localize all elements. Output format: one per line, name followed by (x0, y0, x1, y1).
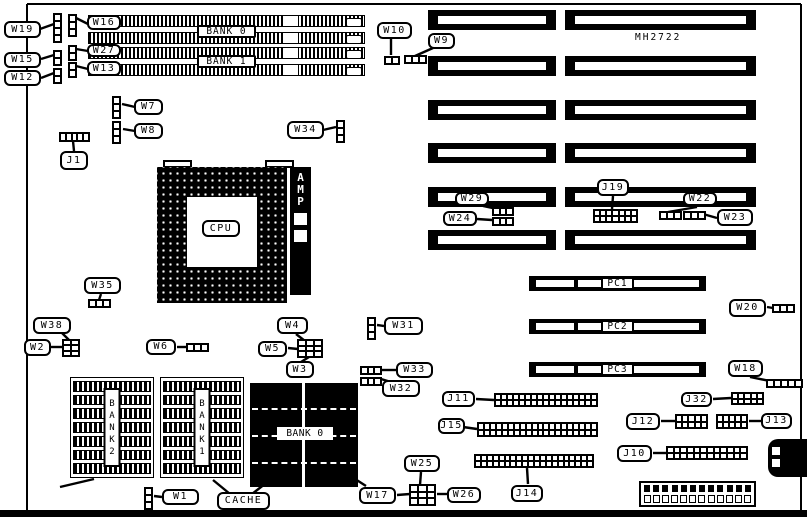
pin-cell (550, 395, 554, 399)
pin-cell (299, 347, 305, 351)
pin-cell (595, 217, 599, 221)
pin-cell (580, 395, 584, 399)
pin-cell (55, 22, 60, 27)
callout-w1: W1 (162, 489, 199, 505)
pin-cell (55, 59, 60, 64)
pin-cell (742, 423, 746, 428)
pin-cell (55, 77, 60, 82)
callout-w38: W38 (33, 317, 71, 334)
pin-cell (568, 424, 572, 429)
pin-cell (695, 454, 700, 458)
pin-cell (55, 15, 60, 20)
pin-cell (488, 462, 492, 466)
pin-cell (338, 129, 343, 134)
pin-cell (307, 347, 313, 351)
pin-cell (708, 448, 713, 452)
pin-cell (55, 36, 60, 41)
pin-cell (547, 462, 551, 466)
pin-cell (677, 416, 681, 421)
pin-cell (544, 424, 548, 429)
isa-slot-2-seg1 (565, 100, 756, 120)
pin-cell (702, 416, 706, 421)
pin-cell (507, 209, 512, 214)
pin-cell (580, 431, 584, 436)
power-pin (717, 485, 723, 492)
pin-cell (70, 47, 75, 52)
pin-cell (506, 462, 510, 466)
pin-cell (735, 454, 740, 458)
pin-cell (428, 493, 434, 498)
pin-cell (70, 64, 75, 69)
pin-cell (768, 381, 773, 386)
leader-line-0 (40, 24, 54, 29)
callout-j11: J11 (442, 391, 475, 407)
pin-cell (685, 213, 690, 218)
pin-cell (728, 448, 733, 452)
pin-cell (146, 503, 151, 508)
pin-cell (55, 29, 60, 34)
callout-w22: W22 (683, 192, 717, 206)
pin-cell (64, 341, 70, 344)
power-pin (727, 485, 733, 492)
pin-cell (559, 456, 563, 460)
pin-cell (688, 454, 693, 458)
jumper-w12 (53, 68, 62, 84)
pin-cell (620, 217, 624, 221)
pin-cell (428, 486, 434, 491)
pin-cell (580, 401, 584, 405)
pin-cell (681, 454, 686, 458)
pin-cell (613, 217, 617, 221)
pin-cell (514, 395, 518, 399)
pin-cell (556, 431, 560, 436)
power-socket (708, 495, 715, 503)
pin-cell (503, 424, 507, 429)
pin-cell (668, 454, 673, 458)
callout-j10: J10 (617, 445, 652, 462)
jumper-w23 (683, 211, 706, 220)
power-pin (745, 485, 751, 492)
pin-cell (503, 431, 507, 436)
pin-cell (507, 219, 512, 224)
pin-cell (411, 493, 417, 498)
callout-simm-bank0: BANK 0 (197, 25, 256, 38)
pci-slot-label-0: PC1 (601, 277, 634, 290)
pin-cell (61, 134, 65, 140)
pin-cell (496, 395, 500, 399)
callout-w31: W31 (384, 317, 423, 335)
pin-cell (494, 209, 499, 214)
pin-cell (715, 454, 720, 458)
pin-cell (752, 394, 756, 398)
pin-cell (533, 424, 537, 429)
pin-header-j13 (716, 414, 748, 429)
power-socket (644, 495, 651, 503)
pin-cell (497, 431, 501, 436)
pin-cell (675, 454, 680, 458)
power-socket-row (644, 495, 751, 503)
pin-cell (520, 401, 524, 405)
power-socket (735, 495, 742, 503)
pin-cell (588, 456, 592, 460)
isa-slot-3-seg1 (565, 143, 756, 163)
pin-cell (114, 98, 119, 103)
power-connector (639, 481, 756, 507)
pin-cell (620, 211, 624, 215)
callout-cache-bank0: BANK 0 (277, 427, 333, 440)
pin-cell (724, 416, 728, 421)
board-edge-bottom (0, 510, 807, 517)
pin-cell (72, 341, 78, 344)
jumper-w9 (404, 55, 427, 64)
jumper-w22 (659, 211, 682, 220)
pin-cell (538, 401, 542, 405)
pin-cell (683, 423, 687, 428)
callout-w3: W3 (286, 361, 314, 378)
jumper-w10 (384, 56, 400, 65)
callout-w12: W12 (4, 70, 41, 86)
pin-header-j12 (675, 414, 708, 429)
pin-cell (307, 341, 313, 345)
callout-w25: W25 (404, 455, 440, 472)
pin-cell (632, 217, 636, 221)
power-pin (708, 485, 714, 492)
pin-cell (84, 134, 88, 140)
callout-j19: J19 (597, 179, 629, 196)
pin-cell (496, 401, 500, 405)
isa-slot-1-seg0 (428, 56, 556, 76)
power-pin (662, 485, 668, 492)
cache-array-label-1: BANK1 (194, 388, 211, 467)
pin-cell (375, 379, 380, 384)
pin-cell (501, 219, 506, 224)
pin-cell (689, 416, 693, 421)
power-pin (653, 485, 659, 492)
pin-cell (574, 401, 578, 405)
pin-cell (745, 400, 749, 404)
jumper-w34 (336, 120, 345, 143)
pin-cell (375, 368, 380, 373)
pin-cell (521, 431, 525, 436)
pin-cell (592, 431, 596, 436)
pin-cell (576, 462, 580, 466)
callout-w18: W18 (728, 360, 763, 377)
callout-w16: W16 (87, 15, 121, 30)
pin-header-j14 (474, 454, 594, 468)
pin-cell (482, 462, 486, 466)
pin-cell (544, 395, 548, 399)
pin-cell (97, 301, 102, 306)
leader-line-33 (463, 427, 477, 429)
pin-header-w38-w2-block (62, 339, 80, 357)
pin-cell (699, 213, 704, 218)
power-socket (717, 495, 724, 503)
isa-slot-0-seg1 (565, 10, 756, 30)
callout-w24: W24 (443, 211, 477, 226)
pin-cell (146, 489, 151, 494)
pin-cell (539, 424, 543, 429)
pin-cell (369, 379, 374, 384)
pin-cell (553, 456, 557, 460)
pin-cell (526, 401, 530, 405)
pin-cell (413, 57, 418, 62)
pin-cell (494, 219, 499, 224)
pin-header-w17-w25-w26-block (409, 484, 436, 506)
jumper-w1 (144, 487, 153, 510)
pin-cell (509, 431, 513, 436)
callout-w15: W15 (4, 52, 41, 68)
pin-cell (695, 448, 700, 452)
pin-cell (730, 423, 734, 428)
pin-cell (307, 352, 313, 356)
pin-cell (544, 431, 548, 436)
pin-cell (701, 448, 706, 452)
pin-cell (721, 448, 726, 452)
pin-cell (509, 424, 513, 429)
pin-cell (788, 306, 793, 311)
pin-cell (70, 71, 75, 76)
callout-cache: CACHE (217, 492, 270, 510)
callout-w34: W34 (287, 121, 324, 139)
pin-cell (582, 462, 586, 466)
isa-slot-4-seg0 (428, 187, 556, 207)
pin-cell (607, 217, 611, 221)
pin-cell (688, 448, 693, 452)
pin-cell (730, 416, 734, 421)
pin-cell (541, 462, 545, 466)
pin-cell (532, 395, 536, 399)
pin-cell (539, 431, 543, 436)
jumper-w31 (367, 317, 376, 340)
pin-cell (299, 352, 305, 356)
leader-line-35 (713, 398, 731, 399)
pin-cell (782, 381, 787, 386)
pin-cell (626, 211, 630, 215)
callout-w5: W5 (258, 341, 287, 357)
callout-w26: W26 (447, 487, 481, 503)
isa-slot-2-seg0 (428, 100, 556, 120)
pin-cell (568, 431, 572, 436)
jumper-w16 (68, 14, 77, 37)
pin-cell (562, 424, 566, 429)
pin-cell (146, 496, 151, 501)
pin-cell (613, 211, 617, 215)
callout-j15: J15 (438, 418, 465, 434)
label-char: B (199, 398, 204, 410)
pin-cell (114, 137, 119, 142)
callout-w29: W29 (455, 192, 489, 206)
isa-slot-4-seg1 (565, 187, 756, 207)
pin-cell (702, 423, 706, 428)
pin-cell (369, 319, 374, 324)
callout-w13: W13 (87, 61, 121, 76)
pin-cell (595, 211, 599, 215)
callout-w19: W19 (4, 21, 41, 38)
pin-cell (369, 326, 374, 331)
jumper-w20 (772, 304, 795, 313)
pin-cell (553, 462, 557, 466)
pin-cell (411, 486, 417, 491)
pin-cell (741, 454, 746, 458)
pin-cell (626, 217, 630, 221)
pin-cell (565, 462, 569, 466)
pin-cell (742, 416, 746, 421)
callout-simm-bank1: BANK 1 (197, 55, 256, 68)
pin-cell (681, 448, 686, 452)
pin-header-j19 (593, 209, 638, 223)
pin-cell (428, 499, 434, 504)
pin-cell (485, 424, 489, 429)
power-socket (671, 495, 678, 503)
pin-cell (556, 401, 560, 405)
pin-cell (55, 70, 60, 75)
pin-cell (315, 347, 321, 351)
pin-cell (574, 424, 578, 429)
pin-cell (70, 23, 75, 28)
pin-cell (586, 431, 590, 436)
leader-line-40 (60, 479, 94, 487)
pin-cell (586, 424, 590, 429)
pin-header-j32 (731, 392, 764, 405)
callout-w9: W9 (428, 33, 455, 49)
power-pin (681, 485, 687, 492)
pin-cell (72, 352, 78, 355)
isa-slot-1-seg1 (565, 56, 756, 76)
pin-cell (508, 401, 512, 405)
pin-cell (515, 424, 519, 429)
pin-cell (523, 462, 527, 466)
pin-cell (494, 456, 498, 460)
leader-line-26 (377, 325, 384, 326)
pin-cell (781, 306, 786, 311)
jumper-w8 (112, 121, 121, 144)
pin-cell (601, 217, 605, 221)
power-socket (726, 495, 733, 503)
leader-line-32 (476, 399, 494, 400)
pin-cell (523, 456, 527, 460)
pin-cell (692, 213, 697, 218)
pin-cell (592, 395, 596, 399)
pin-cell (491, 424, 495, 429)
pin-cell (724, 423, 728, 428)
pin-cell (739, 400, 743, 404)
pin-cell (556, 424, 560, 429)
label-char: K (109, 434, 114, 446)
pin-cell (419, 486, 425, 491)
pin-cell (701, 454, 706, 458)
leader-line-34 (527, 468, 528, 484)
label-char: N (199, 422, 204, 434)
power-socket (680, 495, 687, 503)
callout-w17: W17 (359, 487, 396, 504)
pin-cell (586, 401, 590, 405)
pin-cell (570, 456, 574, 460)
pin-cell (675, 213, 680, 218)
pin-cell (78, 134, 82, 140)
pci-slot-label-1: PC2 (601, 320, 634, 333)
pin-cell (72, 346, 78, 349)
pin-cell (550, 431, 554, 436)
pin-cell (592, 401, 596, 405)
pin-cell (511, 456, 515, 460)
pin-cell (739, 394, 743, 398)
pin-cell (114, 112, 119, 117)
label-char: N (109, 422, 114, 434)
callout-j13: J13 (761, 413, 792, 429)
callout-cpu: CPU (202, 220, 240, 237)
jumper-w27 (68, 45, 77, 61)
pin-cell (73, 134, 77, 140)
pin-cell (90, 301, 95, 306)
pin-cell (758, 400, 762, 404)
pin-cell (715, 448, 720, 452)
power-socket (653, 495, 660, 503)
pin-cell (736, 423, 740, 428)
pin-cell (607, 211, 611, 215)
pin-cell (70, 54, 75, 59)
pin-cell (70, 16, 75, 21)
isa-slot-3-seg0 (428, 143, 556, 163)
pin-cell (420, 57, 425, 62)
pin-cell (668, 213, 673, 218)
pin-cell (114, 130, 119, 135)
pin-cell (774, 306, 779, 311)
pin-cell (479, 424, 483, 429)
pin-cell (527, 424, 531, 429)
board-model-text: MH2722 (635, 32, 681, 43)
pin-cell (752, 400, 756, 404)
label-char: K (199, 434, 204, 446)
isa-slot-0-seg0 (428, 10, 556, 30)
pin-cell (696, 423, 700, 428)
pin-cell (64, 346, 70, 349)
pin-cell (576, 456, 580, 460)
pin-cell (592, 424, 596, 429)
motherboard-diagram: MH2722 PC1PC2PC3W19W15W12W16W27W13W10W9W… (0, 0, 807, 520)
jumper-w19 (53, 13, 62, 43)
pin-cell (541, 456, 545, 460)
pin-cell (758, 394, 762, 398)
jumper-w13 (68, 62, 77, 78)
pin-header-w29 (492, 207, 514, 216)
pin-cell (562, 431, 566, 436)
pin-header-w32 (360, 377, 382, 386)
pin-cell (718, 416, 722, 421)
pin-cell (570, 462, 574, 466)
leader-line-11 (323, 127, 336, 130)
pin-cell (733, 400, 737, 404)
power-pin (672, 485, 678, 492)
pin-cell (533, 431, 537, 436)
pin-cell (568, 395, 572, 399)
pin-cell (574, 395, 578, 399)
leader-line-10 (73, 141, 74, 151)
pin-cell (689, 423, 693, 428)
pin-cell (675, 448, 680, 452)
cache-sram-array-1: BANK1 (160, 377, 244, 478)
pin-cell (67, 134, 71, 140)
callout-w6: W6 (146, 339, 176, 355)
power-pin (699, 485, 705, 492)
pin-cell (529, 462, 533, 466)
power-socket (689, 495, 696, 503)
pin-header-j1 (59, 132, 90, 142)
callout-w23: W23 (717, 209, 753, 226)
callout-w10: W10 (377, 22, 412, 39)
pin-cell (502, 401, 506, 405)
pin-cell (668, 448, 673, 452)
pin-cell (733, 394, 737, 398)
